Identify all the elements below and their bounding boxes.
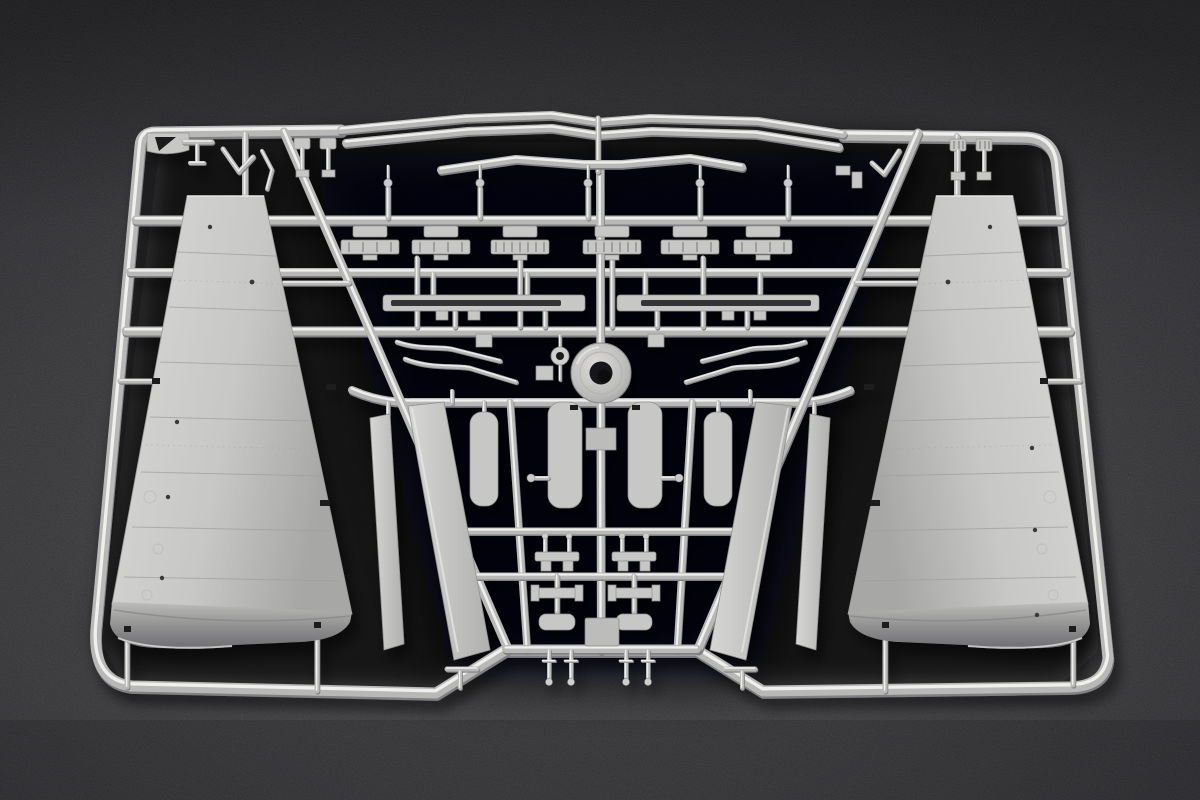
gear-door-left <box>548 402 582 508</box>
door-stub-pin-left <box>527 474 535 482</box>
small-block <box>536 366 553 380</box>
center-plate <box>585 618 619 646</box>
square-fitting-left <box>476 334 492 347</box>
wheel-hub <box>571 343 631 403</box>
door-center-pad <box>586 428 616 450</box>
small-door-right <box>704 412 732 506</box>
photo-canvas <box>0 0 1200 800</box>
square-fitting-right <box>648 334 664 347</box>
sprue <box>95 113 1109 695</box>
door-stub-pin-right <box>675 474 683 482</box>
gear-door-right <box>628 402 662 508</box>
small-door-left <box>470 412 498 506</box>
small-ring-hole <box>556 352 564 360</box>
